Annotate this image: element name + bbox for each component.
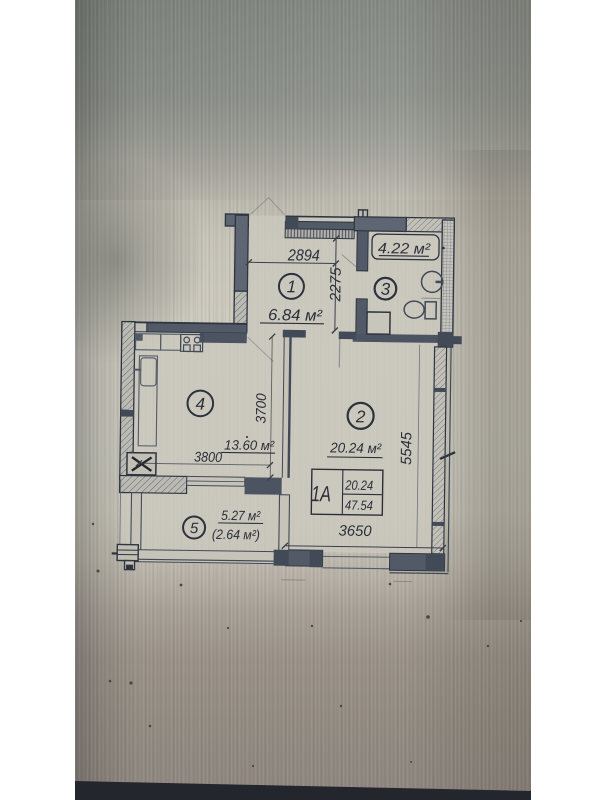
svg-text:3700: 3700: [253, 393, 269, 423]
svg-text:6.84 м²: 6.84 м²: [268, 307, 323, 325]
svg-text:20.24: 20.24: [344, 478, 373, 493]
svg-text:13.60 м²: 13.60 м²: [224, 437, 275, 453]
svg-text:2894: 2894: [287, 247, 320, 264]
svg-text:2: 2: [355, 407, 366, 426]
svg-text:4: 4: [195, 395, 205, 414]
svg-text:2275: 2275: [327, 267, 344, 303]
svg-text:3650: 3650: [338, 523, 372, 540]
svg-text:3: 3: [381, 280, 391, 299]
svg-text:1A: 1A: [311, 481, 331, 506]
svg-text:5: 5: [190, 520, 199, 537]
svg-text:5545: 5545: [398, 431, 415, 465]
svg-text:3800: 3800: [194, 449, 222, 465]
svg-text:20.24 м²: 20.24 м²: [329, 439, 382, 456]
svg-text:5.27 м²: 5.27 м²: [221, 508, 261, 524]
svg-text:(2.64 м²): (2.64 м²): [212, 527, 260, 543]
svg-text:47.54: 47.54: [345, 498, 373, 513]
svg-text:1: 1: [287, 277, 297, 296]
